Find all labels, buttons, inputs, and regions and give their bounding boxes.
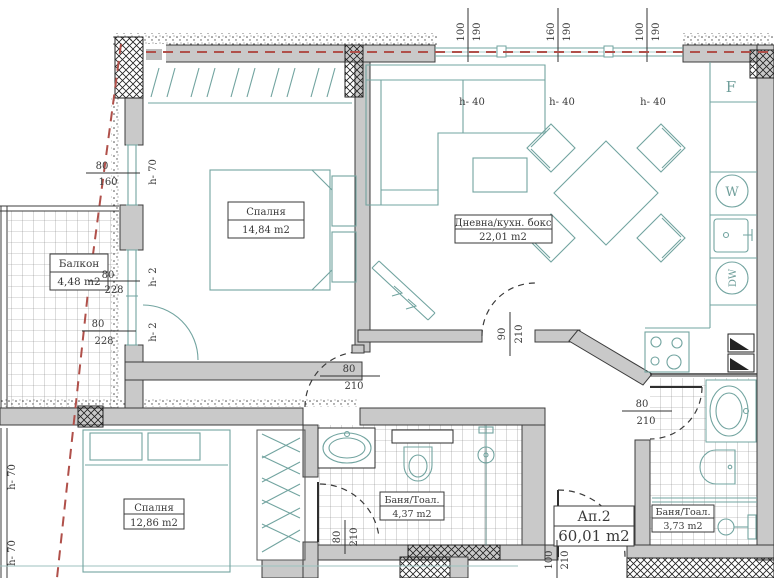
- fridge-label: F: [726, 78, 736, 96]
- living-name: Дневна/кухн. бокс: [454, 218, 551, 229]
- coffee-table: [473, 158, 527, 192]
- diagonal-console: [372, 261, 435, 320]
- wardrobe-bedroom2: [257, 430, 305, 560]
- dim-value: 100: [544, 550, 555, 569]
- dim-value: 80: [92, 319, 105, 330]
- dim-top-window-3: 100 190: [635, 22, 662, 41]
- dim-top-window-2: 160 190: [546, 22, 573, 41]
- dimension-ticks-top: [468, 8, 647, 62]
- kitchen: W DW F: [645, 62, 757, 374]
- dim-value: 80: [96, 161, 109, 172]
- sill-h70-2: h- 70: [7, 464, 18, 490]
- dim-value: 80: [332, 531, 343, 544]
- dim-value: 190: [562, 22, 573, 41]
- dim-value: 160: [546, 22, 557, 41]
- dim-value: 100: [456, 22, 467, 41]
- dim-value: 80: [636, 399, 649, 410]
- wall-legend-swatch: [146, 49, 162, 60]
- kitchen-sink: [714, 219, 752, 252]
- sill-h40-2: h- 40: [549, 97, 575, 108]
- bath-right-area: 3,73 m2: [663, 521, 702, 532]
- washer-label: W: [725, 185, 739, 200]
- living-area: 22,01 m2: [479, 232, 527, 243]
- dim-value: 160: [98, 177, 117, 188]
- dim-value: 210: [514, 324, 525, 343]
- hatched-wall-bottom-right: [627, 558, 774, 578]
- dim-value: 210: [349, 527, 360, 546]
- label-living: Дневна/кухн. бокс 22,01 m2: [454, 215, 552, 243]
- label-bath-mid: Баня/Тоал. 4,37 m2: [380, 492, 444, 520]
- wardrobe-bedroom1: [148, 68, 352, 103]
- bedroom-top-area: 14,84 m2: [242, 225, 290, 236]
- sill-h40-1: h- 40: [459, 97, 485, 108]
- sill-h2-1: h- 2: [148, 267, 159, 286]
- label-balcony: Балкон 4,48 m2: [50, 254, 108, 290]
- balcony-door-left: [126, 250, 198, 360]
- dim-value: 190: [472, 22, 483, 41]
- dim-value: 228: [104, 285, 123, 296]
- floor-plan-drawing: W DW F: [0, 0, 774, 578]
- bath-right-sink: [706, 380, 756, 442]
- column-top-right: [750, 50, 774, 78]
- sill-h70-3: h- 70: [7, 540, 18, 566]
- balcony-tiles: [8, 211, 118, 408]
- apartment-number: Ап.2: [577, 509, 610, 525]
- dim-top-window-1: 100 190: [456, 22, 483, 41]
- dim-value: 100: [635, 22, 646, 41]
- stove: [645, 332, 689, 372]
- label-bedroom-bottom: Спалня 12,86 m2: [124, 499, 184, 529]
- dim-value: 210: [636, 416, 655, 427]
- bath-mid-area: 4,37 m2: [392, 509, 431, 520]
- insulation-band-south: [0, 398, 358, 407]
- column-balcony: [78, 406, 103, 427]
- label-bath-right: Баня/Тоал. 3,73 m2: [652, 505, 714, 532]
- corner-cabinet: [728, 334, 754, 372]
- bedroom-bottom-name: Спалня: [134, 503, 174, 514]
- balcony-name: Балкон: [59, 258, 100, 270]
- bedroom-bottom-area: 12,86 m2: [130, 518, 178, 529]
- dim-living-door: 90 210: [497, 312, 525, 356]
- bedroom-top-name: Спалня: [246, 207, 286, 218]
- label-bedroom-top: Спалня 14,84 m2: [228, 202, 304, 238]
- dim-value: 190: [651, 22, 662, 41]
- insulation-band-top-right: [683, 33, 774, 45]
- dim-value: 210: [560, 550, 571, 569]
- dim-value: 228: [94, 336, 113, 347]
- hatched-wall-bottom-left: [400, 557, 450, 578]
- apartment-area: 60,01 m2: [558, 527, 629, 545]
- insulation-band-left: [111, 98, 119, 408]
- label-apartment: Ап.2 60,01 m2: [554, 506, 634, 546]
- dim-value: 80: [102, 270, 115, 281]
- sofa: [366, 65, 545, 205]
- bath-right-name: Баня/Тоал.: [656, 507, 711, 518]
- door-living-swing: [482, 283, 535, 336]
- dim-value: 80: [343, 364, 356, 375]
- window-left-bedroom1: [126, 145, 138, 205]
- sill-h2-2: h- 2: [148, 322, 159, 341]
- dim-value: 90: [497, 328, 508, 341]
- column-top-left: [115, 37, 143, 98]
- dishwasher-label: DW: [728, 268, 739, 287]
- sill-h70-1: h- 70: [148, 159, 159, 185]
- sill-h40-3: h- 40: [640, 97, 666, 108]
- door-frame-stub: [352, 345, 364, 353]
- bath-mid-name: Баня/Тоал.: [385, 495, 440, 506]
- bath-mid-sink: [318, 428, 375, 468]
- kitchen-diagonal-wall: [569, 330, 652, 385]
- insulation-band-top-left: [112, 33, 438, 45]
- dim-value: 210: [344, 381, 363, 392]
- dining-table: [554, 141, 658, 245]
- balcony-area: 4,48 m2: [57, 276, 100, 288]
- floor-plan-canvas: W DW F: [0, 0, 774, 578]
